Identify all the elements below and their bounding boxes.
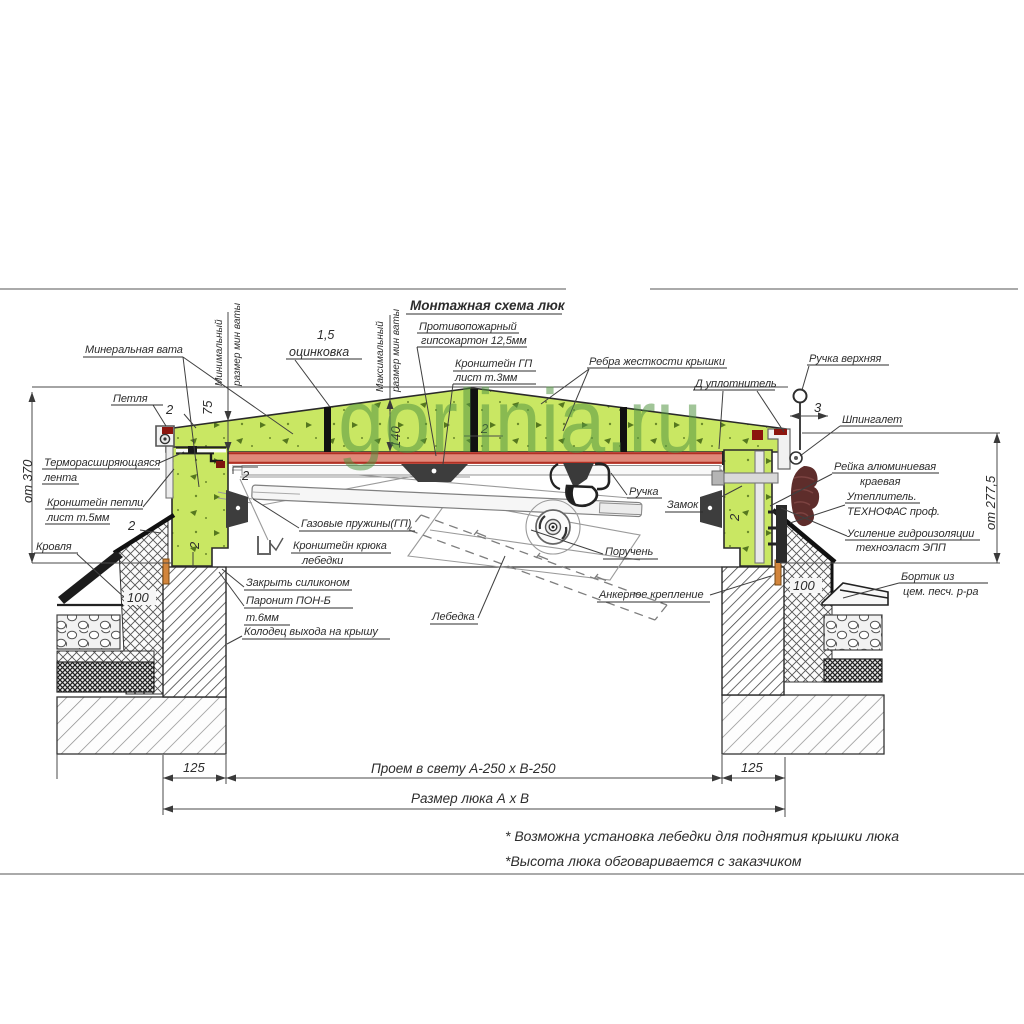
svg-text:1,5: 1,5 xyxy=(317,328,334,342)
svg-text:Терморасширяющаяся: Терморасширяющаяся xyxy=(44,457,161,469)
svg-text:Анкерное крепление: Анкерное крепление xyxy=(598,589,703,601)
svg-text:т.6мм: т.6мм xyxy=(246,612,279,624)
svg-text:лист т.5мм: лист т.5мм xyxy=(46,512,110,524)
svg-text:2: 2 xyxy=(165,402,174,417)
svg-text:2: 2 xyxy=(127,518,136,533)
svg-text:* Возможна установка лебедки д: * Возможна установка лебедки для подняти… xyxy=(505,828,899,844)
svg-text:Ручка: Ручка xyxy=(629,486,658,498)
svg-text:Утеплитель.: Утеплитель. xyxy=(846,491,917,503)
svg-text:Кронштейн петли: Кронштейн петли xyxy=(47,497,143,509)
svg-text:*Высота люка обговаривается с: *Высота люка обговаривается с заказчиком xyxy=(505,853,802,869)
svg-text:100: 100 xyxy=(127,590,149,605)
svg-text:Кровля: Кровля xyxy=(36,541,72,553)
svg-text:Лебедка: Лебедка xyxy=(431,611,475,623)
svg-text:Размер люка А х В: Размер люка А х В xyxy=(411,791,529,806)
svg-text:2: 2 xyxy=(241,468,250,483)
svg-text:Газовые пружины(ГП): Газовые пружины(ГП) xyxy=(301,518,412,530)
svg-text:размер мин ваты: размер мин ваты xyxy=(232,302,243,387)
svg-text:Паронит ПОН-Б: Паронит ПОН-Б xyxy=(246,595,331,607)
svg-text:Кронштейн крюка: Кронштейн крюка xyxy=(293,540,387,552)
svg-text:ТЕХНОФАС проф.: ТЕХНОФАС проф. xyxy=(847,506,940,518)
svg-text:от 277,5: от 277,5 xyxy=(983,475,998,530)
svg-text:Д уплотнитель: Д уплотнитель xyxy=(693,378,777,390)
svg-text:75: 75 xyxy=(200,400,215,415)
svg-text:100: 100 xyxy=(793,578,815,593)
svg-text:Усиление гидроизоляции: Усиление гидроизоляции xyxy=(846,528,974,540)
svg-text:Поручень: Поручень xyxy=(605,546,654,558)
svg-text:Противопожарный: Противопожарный xyxy=(419,321,517,333)
svg-text:Колодец выхода на крышу: Колодец выхода на крышу xyxy=(244,626,379,638)
svg-text:техноэласт ЭПП: техноэласт ЭПП xyxy=(856,542,946,554)
svg-text:3: 3 xyxy=(814,400,822,415)
svg-text:Минеральная вата: Минеральная вата xyxy=(85,344,183,356)
svg-text:Монтажная схема люк: Монтажная схема люк xyxy=(410,298,566,313)
svg-text:от 370: от 370 xyxy=(20,459,35,503)
svg-text:Замок: Замок xyxy=(667,499,699,511)
svg-text:краевая: краевая xyxy=(860,476,901,488)
svg-text:Кронштейн ГП: Кронштейн ГП xyxy=(455,358,532,370)
svg-text:Минимальный: Минимальный xyxy=(214,319,225,386)
svg-text:цем. песч. р-ра: цем. песч. р-ра xyxy=(903,586,978,598)
svg-text:Петля: Петля xyxy=(113,393,148,405)
svg-text:лента: лента xyxy=(43,472,77,484)
svg-text:Проем в свету А-250 х В-250: Проем в свету А-250 х В-250 xyxy=(371,761,556,776)
svg-text:Закрыть силиконом: Закрыть силиконом xyxy=(246,577,350,589)
svg-text:Бортик из: Бортик из xyxy=(901,571,954,583)
svg-text:Шпингалет: Шпингалет xyxy=(842,414,902,426)
svg-text:Рейка алюминиевая: Рейка алюминиевая xyxy=(834,461,936,473)
svg-text:125: 125 xyxy=(183,760,205,775)
svg-text:Ручка верхняя: Ручка верхняя xyxy=(809,353,881,365)
svg-text:125: 125 xyxy=(741,760,763,775)
svg-text:гипсокартон 12,5мм: гипсокартон 12,5мм xyxy=(421,335,527,347)
svg-text:2: 2 xyxy=(187,541,202,550)
svg-text:2: 2 xyxy=(727,513,742,522)
svg-text:gorlinia.ru: gorlinia.ru xyxy=(338,372,702,472)
svg-text:лебедки: лебедки xyxy=(301,555,343,567)
svg-text:Ребра жесткости крышки: Ребра жесткости крышки xyxy=(589,356,725,368)
svg-text:оцинковка: оцинковка xyxy=(289,345,349,359)
